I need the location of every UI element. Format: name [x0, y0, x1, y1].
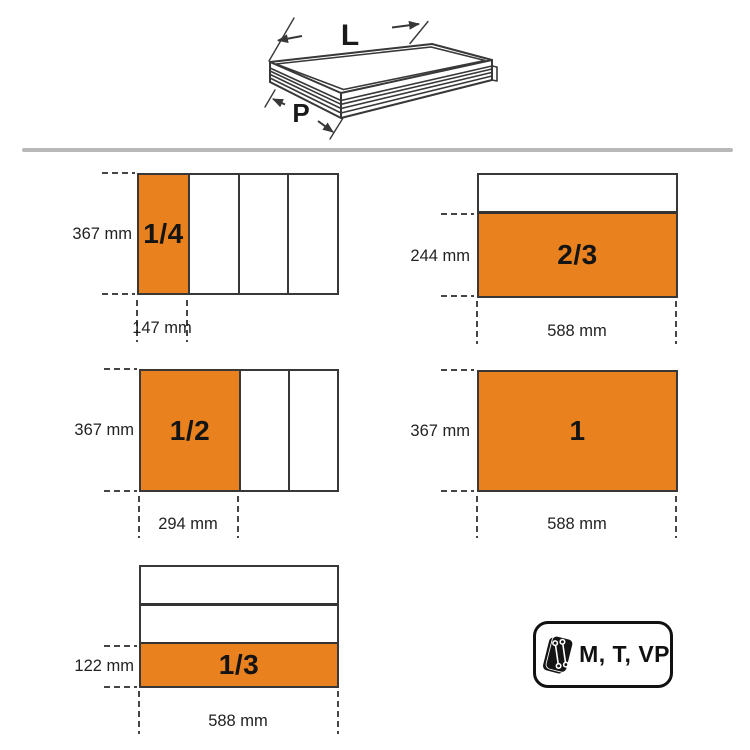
highlighted-compartment: 1/3 [141, 644, 337, 686]
highlighted-compartment: 1/4 [139, 175, 188, 293]
dimension-dash [441, 369, 474, 371]
dimension-dash [675, 301, 677, 344]
fraction-label: 1/3 [219, 649, 259, 681]
tray-outline: 1/4 [137, 173, 339, 295]
dimension-dash [102, 293, 135, 295]
compartment [238, 175, 288, 293]
compartment [239, 371, 288, 490]
width-dimension-label: 147 mm [102, 319, 222, 337]
dimension-dash [337, 691, 339, 734]
tray-outline: 2/3 [477, 173, 678, 298]
dimension-dash [104, 645, 137, 647]
compartment [287, 175, 337, 293]
dimension-dash [102, 172, 135, 174]
fraction-label: 2/3 [557, 239, 597, 271]
drawer-length-label: L [341, 19, 359, 52]
dimension-dash [441, 213, 474, 215]
compartment [188, 175, 238, 293]
highlighted-compartment: 1/2 [141, 371, 239, 490]
compartment [479, 175, 676, 214]
dimension-dash [476, 301, 478, 344]
highlighted-compartment: 1 [479, 372, 676, 490]
tray-outline: 1/3 [139, 565, 339, 688]
fraction-label: 1/4 [143, 218, 183, 250]
dimension-dash [104, 490, 137, 492]
height-dimension-label: 367 mm [390, 422, 470, 440]
width-dimension-label: 588 mm [178, 712, 298, 730]
tool-tray-wrenches-icon [540, 625, 577, 685]
badge-label: M, T, VP [579, 641, 670, 668]
tray-outline: 1/2 [139, 369, 339, 492]
dimension-dash [441, 490, 474, 492]
height-dimension-label: 244 mm [390, 247, 470, 265]
drawer-divider-size-diagram: L P 1/4 367 mm 147 mm 2/3 244 mm [0, 0, 750, 750]
fraction-label: 1/2 [170, 415, 210, 447]
drawer-depth-label: P [292, 98, 309, 128]
compartment [141, 606, 337, 644]
width-dimension-label: 588 mm [517, 515, 637, 533]
width-dimension-label: 588 mm [517, 322, 637, 340]
height-dimension-label: 122 mm [54, 657, 134, 675]
width-dimension-label: 294 mm [128, 515, 248, 533]
dimension-dash [104, 686, 137, 688]
tool-type-badge: M, T, VP [533, 621, 673, 688]
dimension-dash [675, 496, 677, 538]
height-dimension-label: 367 mm [52, 225, 132, 243]
section-divider-line [22, 148, 733, 152]
dimension-dash [138, 691, 140, 734]
height-dimension-label: 367 mm [54, 421, 134, 439]
dimension-dash [476, 496, 478, 538]
compartment [141, 567, 337, 606]
dimension-dash [104, 368, 137, 370]
dimension-dash [441, 295, 474, 297]
drawer-isometric-illustration: L P [255, 0, 535, 145]
tray-outline: 1 [477, 370, 678, 492]
highlighted-compartment: 2/3 [479, 214, 676, 296]
fraction-label: 1 [569, 415, 585, 447]
compartment [288, 371, 337, 490]
